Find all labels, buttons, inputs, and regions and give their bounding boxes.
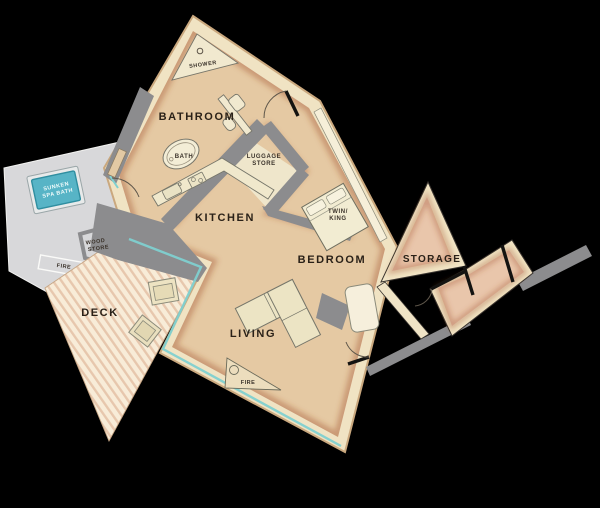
floor-plan-canvas: SHOWER BATHROOM BATH LUGGAGE STORE KITCH… [0,0,600,508]
bed-label-2: KING [329,216,346,222]
living-fire-label: FIRE [241,380,256,386]
bath-label: BATH [175,154,194,160]
floor-plan: SHOWER BATHROOM BATH LUGGAGE STORE KITCH… [0,0,600,508]
bedroom-label: BEDROOM [298,254,367,266]
bathroom-label: BATHROOM [159,111,236,123]
bed-label-1: TWIN/ [328,209,348,215]
kitchen-label: KITCHEN [195,212,255,224]
storage-label: STORAGE [403,254,461,265]
luggage-label-1: LUGGAGE [247,154,282,160]
luggage-label-2: STORE [252,161,276,167]
deck-chair-1-cushion [153,283,174,300]
deck-chair-1 [148,278,179,305]
living-label: LIVING [230,328,276,340]
deck-label: DECK [81,307,119,319]
